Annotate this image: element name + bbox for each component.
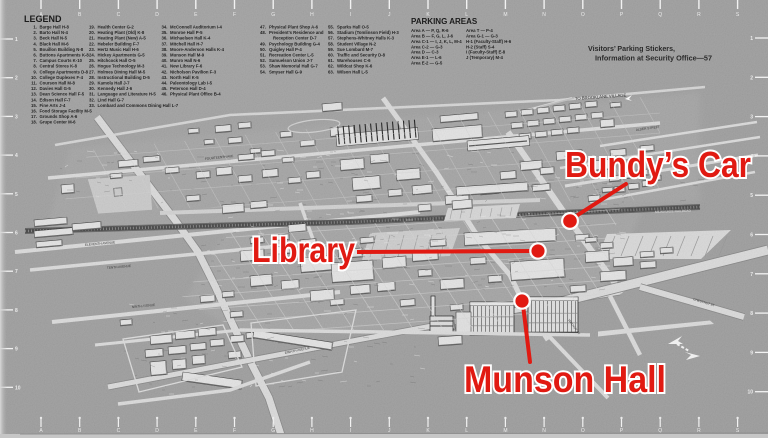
svg-text:Heating Plant (Old) K-8: Heating Plant (Old) K-8 <box>98 30 145 35</box>
svg-text:47.: 47. <box>260 25 266 30</box>
svg-text:Language and Literature H-5: Language and Literature H-5 <box>98 92 157 97</box>
svg-text:Grupe Center M-6: Grupe Center M-6 <box>40 120 77 125</box>
svg-text:4: 4 <box>15 153 18 159</box>
svg-text:I: I <box>350 12 351 18</box>
svg-text:Wildcat Shop K-6: Wildcat Shop K-6 <box>337 64 373 69</box>
svg-text:51.: 51. <box>260 53 266 58</box>
svg-text:Munson Hall: Munson Hall <box>464 358 666 400</box>
svg-text:26.: 26. <box>89 64 95 69</box>
svg-text:38.: 38. <box>162 47 168 52</box>
svg-text:Hitchcock Hall O-5: Hitchcock Hall O-5 <box>98 58 137 63</box>
svg-text:Information at Security Office: Information at Security Office—57 <box>595 54 712 63</box>
svg-text:Paleontology Lab I-5: Paleontology Lab I-5 <box>170 81 213 86</box>
svg-text:Peterson Hall D-4: Peterson Hall D-4 <box>170 86 206 91</box>
svg-text:R: R <box>697 12 701 18</box>
svg-text:10: 10 <box>15 385 21 391</box>
svg-text:Hogue Technology M-3: Hogue Technology M-3 <box>98 64 146 69</box>
svg-text:63.: 63. <box>328 69 334 74</box>
svg-text:29.: 29. <box>89 81 95 86</box>
svg-text:Sue Lombard M-7: Sue Lombard M-7 <box>337 47 374 52</box>
svg-text:Heating Plant (New) A-5: Heating Plant (New) A-5 <box>98 36 147 41</box>
svg-text:N: N <box>542 12 546 18</box>
svg-text:44.: 44. <box>162 81 168 86</box>
svg-text:5: 5 <box>15 192 18 198</box>
svg-text:Dean Science Hall F-5: Dean Science Hall F-5 <box>40 92 85 97</box>
svg-text:15.: 15. <box>31 103 37 108</box>
svg-text:H-2 (Staff) S-4: H-2 (Staff) S-4 <box>466 44 495 49</box>
svg-text:9: 9 <box>15 347 18 353</box>
svg-text:20.: 20. <box>89 30 95 35</box>
svg-text:Holmes Dining Hall M-5: Holmes Dining Hall M-5 <box>98 69 146 74</box>
svg-text:H: H <box>310 12 314 18</box>
svg-text:53.: 53. <box>260 64 266 69</box>
svg-text:Monroe Hall P-5: Monroe Hall P-5 <box>170 30 203 35</box>
svg-text:President's Residence and: President's Residence and <box>269 30 324 35</box>
svg-text:Warehouses C-6: Warehouses C-6 <box>337 58 371 63</box>
svg-text:19.: 19. <box>89 25 95 30</box>
svg-text:21.: 21. <box>89 36 95 41</box>
svg-text:Area C-1 — I, J, K, L, M-4: Area C-1 — I, J, K, L, M-4 <box>411 39 462 44</box>
svg-text:7: 7 <box>750 272 753 278</box>
svg-text:9: 9 <box>750 350 753 356</box>
svg-text:58.: 58. <box>328 41 334 46</box>
svg-text:G: G <box>271 428 275 434</box>
svg-text:18.: 18. <box>31 120 37 125</box>
svg-text:2: 2 <box>750 75 753 81</box>
svg-text:12.: 12. <box>31 86 37 91</box>
svg-text:1: 1 <box>15 37 18 43</box>
svg-text:College Apartments D-8: College Apartments D-8 <box>40 69 89 74</box>
svg-text:Library: Library <box>252 231 355 270</box>
svg-text:30.: 30. <box>89 86 95 91</box>
svg-text:17.: 17. <box>31 114 37 119</box>
svg-text:Hertz Music Hall H-6: Hertz Music Hall H-6 <box>98 47 140 52</box>
svg-text:Stadium (Tomlinson Field) H-3: Stadium (Tomlinson Field) H-3 <box>337 30 399 35</box>
svg-text:Campus Courts K-10: Campus Courts K-10 <box>40 58 83 63</box>
svg-text:Grounds Shop A-6: Grounds Shop A-6 <box>40 114 78 119</box>
svg-text:27.: 27. <box>89 69 95 74</box>
svg-text:Munson Hall M-9: Munson Hall M-9 <box>170 53 205 58</box>
svg-text:Food Storage Facility M-5: Food Storage Facility M-5 <box>40 109 93 114</box>
svg-text:Michaelsen Hall K-4: Michaelsen Hall K-4 <box>170 36 211 41</box>
svg-text:Bundy’s Car: Bundy’s Car <box>565 144 751 185</box>
svg-text:Lombard and Commons Dining Hal: Lombard and Commons Dining Hall L-7 <box>98 103 179 108</box>
svg-text:11.: 11. <box>31 81 37 86</box>
svg-text:46.: 46. <box>162 92 168 97</box>
svg-text:Lind Hall G-7: Lind Hall G-7 <box>98 97 125 102</box>
svg-text:F: F <box>233 12 236 18</box>
svg-text:Stephens-Whitney Halls K-3: Stephens-Whitney Halls K-3 <box>337 36 395 41</box>
svg-text:32.: 32. <box>89 97 95 102</box>
svg-text:22.: 22. <box>89 41 95 46</box>
svg-text:7: 7 <box>15 269 18 275</box>
svg-text:Area E-1 — L-6: Area E-1 — L-6 <box>411 55 442 60</box>
svg-text:Q: Q <box>658 12 662 18</box>
svg-text:Physical Plant Office B-4: Physical Plant Office B-4 <box>170 92 221 97</box>
svg-text:D: D <box>155 428 159 434</box>
svg-text:Sparks Hall O-5: Sparks Hall O-5 <box>337 25 369 30</box>
svg-text:J (Temporary) M-4: J (Temporary) M-4 <box>466 55 504 60</box>
svg-text:5.: 5. <box>33 47 37 52</box>
svg-text:Buttons Apartments K-8: Buttons Apartments K-8 <box>40 53 90 58</box>
svg-text:49.: 49. <box>260 41 266 46</box>
svg-text:5: 5 <box>750 193 753 199</box>
svg-text:31.: 31. <box>89 92 95 97</box>
svg-text:New Library F-6: New Library F-6 <box>170 64 203 69</box>
svg-text:Samuelson Union J-7: Samuelson Union J-7 <box>269 58 313 63</box>
svg-text:Moore-Anderson Halls K-4: Moore-Anderson Halls K-4 <box>170 47 225 52</box>
svg-text:Visitors’ Parking Stickers,: Visitors’ Parking Stickers, <box>588 44 675 53</box>
svg-text:43.: 43. <box>162 75 168 80</box>
svg-text:North Hall K-5: North Hall K-5 <box>170 75 199 80</box>
svg-text:3: 3 <box>15 114 18 120</box>
svg-text:54.: 54. <box>260 69 266 74</box>
svg-text:37.: 37. <box>162 41 168 46</box>
svg-text:Quigley Hall P-4: Quigley Hall P-4 <box>269 47 302 52</box>
svg-text:G: G <box>271 12 275 18</box>
svg-text:7.: 7. <box>33 58 37 63</box>
svg-text:40.: 40. <box>162 58 168 63</box>
svg-text:6: 6 <box>750 233 753 239</box>
svg-text:3: 3 <box>750 115 753 121</box>
svg-text:2.: 2. <box>33 30 37 35</box>
svg-text:2: 2 <box>15 76 18 82</box>
svg-text:Traffic and Security D-8: Traffic and Security D-8 <box>337 53 386 58</box>
svg-text:C: C <box>117 428 121 434</box>
svg-text:10: 10 <box>747 390 753 396</box>
svg-text:45.: 45. <box>162 86 168 91</box>
svg-text:Area A — P, Q, R-6: Area A — P, Q, R-6 <box>411 28 449 33</box>
svg-text:24.: 24. <box>89 53 95 58</box>
svg-text:59.: 59. <box>328 47 334 52</box>
svg-text:62.: 62. <box>328 64 334 69</box>
svg-text:Physical Plant Shop A-6: Physical Plant Shop A-6 <box>269 25 319 30</box>
svg-text:Black Hall M-6: Black Hall M-6 <box>40 41 70 46</box>
svg-text:Psychology Building G-4: Psychology Building G-4 <box>269 41 320 46</box>
svg-text:Barge Hall H-8: Barge Hall H-8 <box>40 25 70 30</box>
svg-text:8: 8 <box>15 308 18 314</box>
svg-text:16.: 16. <box>31 109 37 114</box>
svg-text:52.: 52. <box>260 58 266 63</box>
svg-text:Reception Center D-7: Reception Center D-7 <box>273 36 317 41</box>
svg-text:Wilson Hall L-5: Wilson Hall L-5 <box>337 69 368 74</box>
svg-text:55.: 55. <box>328 25 334 30</box>
svg-text:McConnell Auditorium I-4: McConnell Auditorium I-4 <box>170 25 222 30</box>
svg-text:Munro Hall N-6: Munro Hall N-6 <box>170 58 201 63</box>
svg-text:Recreation Center L-5: Recreation Center L-5 <box>269 53 314 58</box>
svg-text:Instructional Building D-5: Instructional Building D-5 <box>98 75 151 80</box>
svg-text:39.: 39. <box>162 53 168 58</box>
svg-text:PARKING AREAS: PARKING AREAS <box>411 17 478 26</box>
svg-text:Health Center G-2: Health Center G-2 <box>98 25 135 30</box>
svg-text:D: D <box>155 12 159 18</box>
svg-text:3.: 3. <box>33 36 37 41</box>
svg-text:6.: 6. <box>33 53 37 58</box>
svg-text:Hickey Apartments G-5: Hickey Apartments G-5 <box>98 53 146 58</box>
svg-text:Beck Hall N-5: Beck Hall N-5 <box>40 36 68 41</box>
svg-text:56.: 56. <box>328 30 334 35</box>
svg-text:33.: 33. <box>89 103 95 108</box>
svg-text:Central Stores K-8: Central Stores K-8 <box>40 64 78 69</box>
svg-text:48.: 48. <box>260 30 266 35</box>
svg-text:Barto Hall N-4: Barto Hall N-4 <box>40 30 69 35</box>
svg-text:1.: 1. <box>33 25 37 30</box>
svg-text:25.: 25. <box>89 58 95 63</box>
svg-text:Bouillon Building N-8: Bouillon Building N-8 <box>40 47 84 52</box>
svg-text:Shaw Memorial Hall G-7: Shaw Memorial Hall G-7 <box>269 64 318 69</box>
svg-text:F: F <box>233 428 236 434</box>
svg-text:41.: 41. <box>162 64 168 69</box>
svg-text:Kamola Hall J-7: Kamola Hall J-7 <box>98 81 131 86</box>
svg-text:College Duplexes F-4: College Duplexes F-4 <box>40 75 84 80</box>
svg-text:Area D — C-3: Area D — C-3 <box>411 50 439 55</box>
svg-text:61.: 61. <box>328 58 334 63</box>
svg-text:23.: 23. <box>89 47 95 52</box>
svg-text:Area G-1 — G-3: Area G-1 — G-3 <box>466 33 498 38</box>
svg-text:36.: 36. <box>162 36 168 41</box>
svg-text:42.: 42. <box>162 69 168 74</box>
svg-text:34.: 34. <box>162 25 168 30</box>
svg-text:35.: 35. <box>162 30 168 35</box>
svg-text:C: C <box>117 12 121 18</box>
svg-text:Student Village N-2: Student Village N-2 <box>337 41 377 46</box>
svg-text:Area C-2 — G-3: Area C-2 — G-3 <box>411 44 443 49</box>
svg-text:6: 6 <box>15 231 18 237</box>
svg-text:Area E-2 — G-5: Area E-2 — G-5 <box>411 61 443 66</box>
svg-text:4.: 4. <box>33 41 37 46</box>
svg-text:Fine Arts J-4: Fine Arts J-4 <box>40 103 66 108</box>
svg-text:50.: 50. <box>260 47 266 52</box>
svg-text:8.: 8. <box>33 64 37 69</box>
svg-text:Courson Hall M-8: Courson Hall M-8 <box>40 81 76 86</box>
svg-text:I (Faculty-Staff) E-8: I (Faculty-Staff) E-8 <box>466 50 506 55</box>
svg-text:Kennedy Hall J-6: Kennedy Hall J-6 <box>98 86 133 91</box>
svg-text:Davies Hall G-5: Davies Hall G-5 <box>40 86 72 91</box>
svg-text:10.: 10. <box>31 75 37 80</box>
svg-text:Area T — P-4: Area T — P-4 <box>466 28 493 33</box>
svg-text:8: 8 <box>750 311 753 317</box>
svg-text:H-1 (Faculty-Staff) H-6: H-1 (Faculty-Staff) H-6 <box>466 39 512 44</box>
svg-text:Mitchell Hall H-7: Mitchell Hall H-7 <box>170 41 204 46</box>
svg-text:H: H <box>310 428 314 434</box>
svg-text:LEGEND: LEGEND <box>24 14 62 24</box>
svg-text:9.: 9. <box>33 69 37 74</box>
svg-text:1: 1 <box>750 36 753 42</box>
svg-text:Edison Hall F-7: Edison Hall F-7 <box>40 97 72 102</box>
svg-text:14.: 14. <box>31 97 37 102</box>
svg-text:57.: 57. <box>328 36 334 41</box>
svg-text:Area B — F, G, L, J-6: Area B — F, G, L, J-6 <box>411 33 454 38</box>
svg-text:13.: 13. <box>31 92 37 97</box>
svg-text:60.: 60. <box>328 53 334 58</box>
svg-text:28.: 28. <box>89 75 95 80</box>
svg-text:M: M <box>503 12 507 18</box>
svg-text:Smyser Hall G-9: Smyser Hall G-9 <box>269 69 303 74</box>
svg-text:Nicholson Pavilion F-3: Nicholson Pavilion F-3 <box>170 69 217 74</box>
svg-text:O: O <box>581 12 585 18</box>
svg-text:Hebeler Building F-7: Hebeler Building F-7 <box>98 41 140 46</box>
